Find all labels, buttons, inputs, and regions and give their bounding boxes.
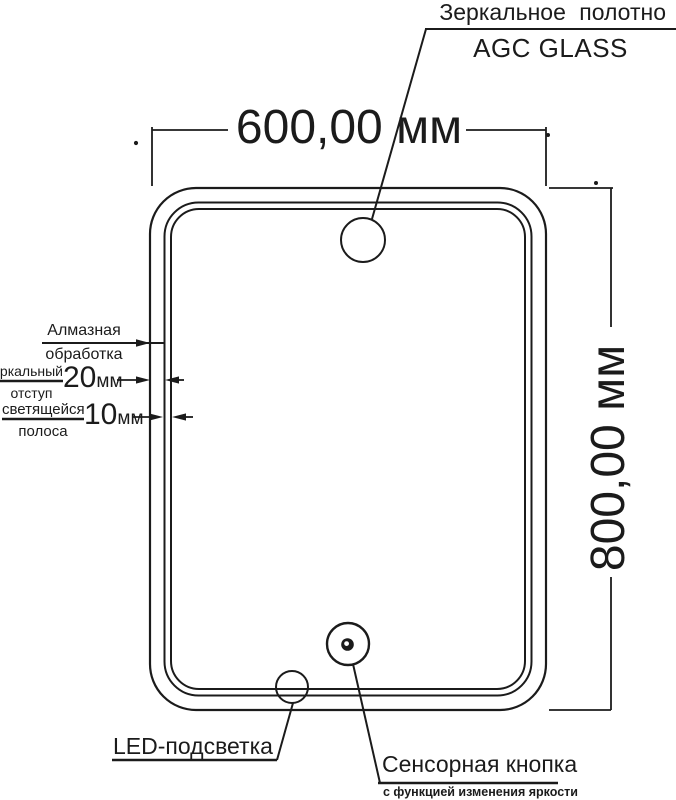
touch-button-leader <box>353 664 380 783</box>
mirror-offset-value-number: 20 <box>63 361 96 394</box>
led-leader <box>277 703 293 760</box>
light-strip-label-line2: полоса <box>2 422 84 441</box>
touch-button-label: Сенсорная кнопка <box>382 751 577 778</box>
mirror-offset-line <box>165 203 532 696</box>
mirror-offset-value-unit: мм <box>96 371 122 392</box>
dim-tick <box>594 181 598 185</box>
mirror-offset-value: 20мм <box>63 363 123 393</box>
touch-button-note: с функцией изменения яркости <box>383 785 578 799</box>
light-strip-arrowhead-right <box>172 413 186 420</box>
mirror-offset-label-line1: Зеркальный <box>0 362 63 381</box>
glass-brand-label: AGC GLASS <box>425 33 676 64</box>
width-dimension-label: 600,00 мм <box>152 102 546 154</box>
led-backlight-circle <box>276 671 308 703</box>
light-strip-value-number: 10 <box>84 398 117 431</box>
diamond-edge-arrowhead <box>136 339 150 346</box>
dim-tick <box>134 141 138 145</box>
led-strip-line <box>171 209 525 689</box>
mirror-panel-label: Зеркальное полотно <box>439 0 666 26</box>
height-dimension-label: 800,00 мм <box>583 318 635 598</box>
light-strip-value-unit: мм <box>117 408 143 429</box>
light-strip-label-line1: светящейся <box>2 400 84 419</box>
light-strip-value: 10мм <box>84 400 144 430</box>
light-strip-arrowhead-left <box>149 413 163 420</box>
touch-button-dot-highlight <box>344 641 349 646</box>
diamond-edge-label-line1: Алмазная <box>42 320 126 342</box>
mirror-offset-arrowhead-left <box>136 376 150 383</box>
mirror-technical-drawing: { "colors": { "ink": "#1b1b1b", "backgro… <box>0 0 676 800</box>
dim-tick <box>546 133 550 137</box>
mirror-panel-callout-circle <box>341 218 385 262</box>
mirror-outer-edge <box>150 188 546 710</box>
led-backlight-label: LED-подсветка <box>113 733 273 760</box>
